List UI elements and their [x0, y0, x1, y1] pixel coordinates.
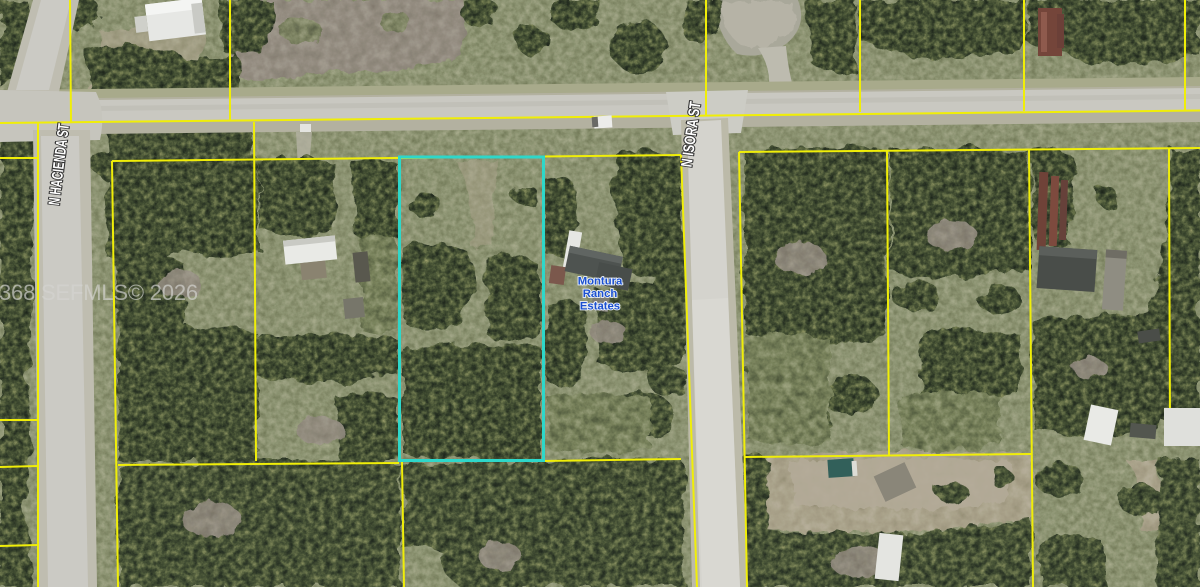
svg-text:Estates: Estates — [580, 301, 620, 313]
svg-text:Ranch: Ranch — [583, 288, 618, 300]
svg-text:Montura: Montura — [578, 276, 623, 288]
svg-text:368 SEFMLS© 2026: 368 SEFMLS© 2026 — [0, 280, 198, 305]
